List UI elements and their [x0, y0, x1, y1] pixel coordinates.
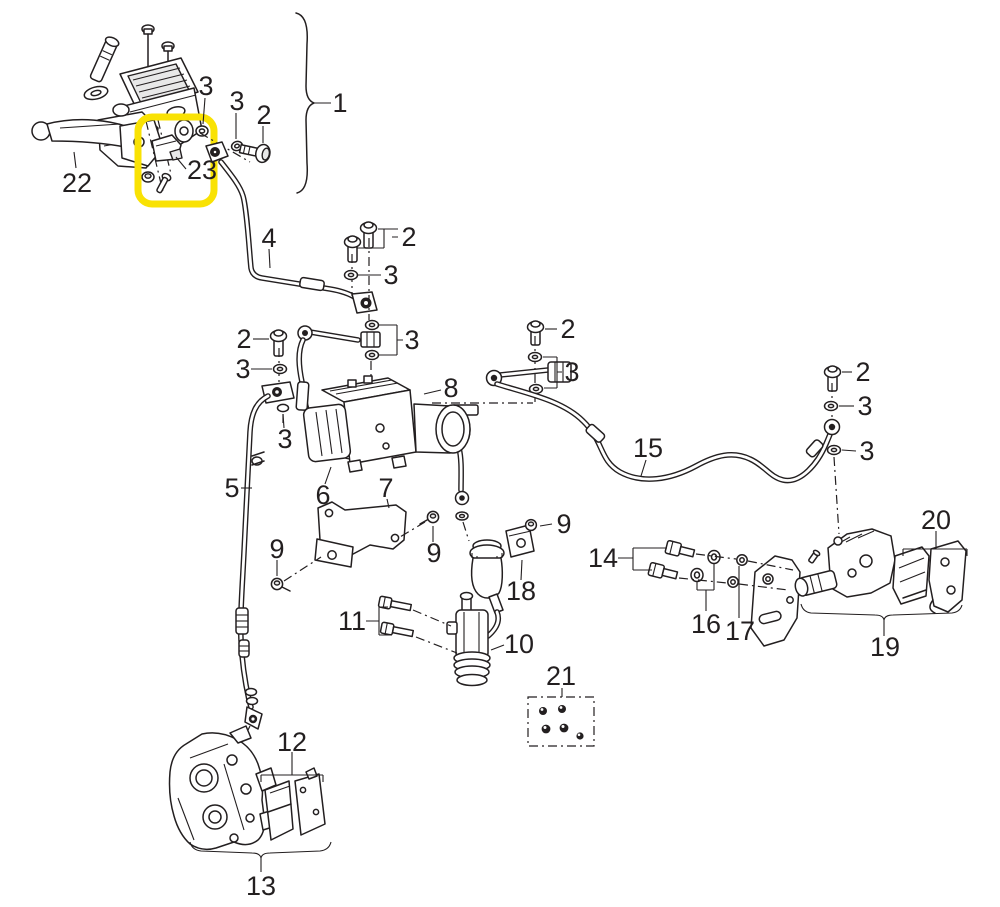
rear-master-cylinder [447, 593, 490, 686]
socket-bolt [648, 562, 678, 581]
brake-pad [929, 541, 966, 613]
callout-3: 3 [857, 391, 872, 421]
brake-pad [265, 781, 293, 840]
rear-banjo-hardware [825, 366, 841, 534]
bleed-cap-kit [528, 697, 594, 746]
callout-2: 2 [401, 222, 416, 252]
mounting-bolt [380, 622, 414, 639]
callout-9: 9 [426, 538, 441, 568]
abs-motor [414, 404, 470, 453]
callout-3: 3 [404, 325, 419, 355]
brake-system-diagram: 1 3 3 2 22 23 4 2 3 3 2 3 3 [0, 0, 1000, 907]
switch-screw [155, 172, 172, 194]
rear-brake-pads [893, 541, 966, 613]
callout-9: 9 [556, 509, 571, 539]
hose-sleeve [299, 277, 324, 291]
brake-pad [893, 547, 929, 604]
callout-3: 3 [859, 436, 874, 466]
callout-8: 8 [443, 373, 458, 403]
callout-17: 17 [725, 616, 755, 646]
callout-18: 18 [506, 576, 536, 606]
callout-3: 3 [229, 86, 244, 116]
hose4-end-elbow [352, 292, 377, 313]
callout-2: 2 [256, 100, 271, 130]
callout-13: 13 [246, 871, 276, 901]
hose-fitting [236, 608, 249, 657]
callout-19: 19 [870, 632, 900, 662]
callout-1: 1 [332, 88, 347, 118]
callout-2: 2 [560, 314, 575, 344]
bleed-cap [558, 705, 566, 713]
rear-brake-hose [497, 384, 840, 480]
callout-2: 2 [855, 357, 870, 387]
nut [728, 577, 738, 587]
hose-sleeve [585, 423, 606, 443]
callout-3: 3 [277, 424, 292, 454]
callout-11: 11 [338, 606, 366, 636]
hose-sleeve [296, 382, 309, 411]
banjo-bolt [238, 140, 271, 164]
callout-3: 3 [235, 354, 250, 384]
bracket-screw [526, 520, 537, 531]
switch-screw [142, 172, 154, 182]
callout-7: 7 [378, 473, 393, 503]
rear-caliper-body [794, 529, 895, 597]
abs-connector-block [303, 404, 351, 463]
callout-23: 23 [187, 155, 217, 185]
callout-9: 9 [269, 534, 284, 564]
brake-lever [32, 120, 163, 166]
callout-5: 5 [224, 473, 239, 503]
callout-15: 15 [633, 433, 663, 463]
callout-10: 10 [504, 629, 534, 659]
bleed-cap [539, 707, 547, 715]
socket-bolt [665, 540, 695, 559]
callout-16: 16 [691, 609, 721, 639]
hose-fitting-nut [361, 332, 380, 347]
callout-21: 21 [546, 661, 576, 691]
callout-4: 4 [261, 223, 276, 253]
callout-3: 3 [564, 357, 579, 387]
rear-caliper-assembly [751, 529, 966, 646]
hose8-banjo-eye [298, 326, 358, 340]
reservoir-screw [142, 25, 154, 70]
callout-6: 6 [315, 480, 330, 510]
callout-12: 12 [277, 727, 307, 757]
callout-3: 3 [383, 260, 398, 290]
bleed-cap [542, 725, 551, 734]
parts-diagram-page: 1 3 3 2 22 23 4 2 3 3 2 3 3 [0, 0, 1000, 907]
mounting-bolt [378, 596, 412, 613]
nut [737, 555, 747, 565]
bleed-cap [560, 724, 569, 733]
callout-14: 14 [588, 543, 618, 573]
callout-2: 2 [236, 324, 251, 354]
hose-clip [252, 452, 264, 465]
brake-pad [295, 768, 325, 835]
callout-20: 20 [921, 505, 951, 535]
callout-22: 22 [62, 168, 92, 198]
front-brake-hose-lower [236, 396, 268, 742]
bleed-nipple [807, 549, 820, 564]
abs-bracket [315, 502, 406, 567]
hose5-top-hardware [262, 330, 294, 427]
callout-3: 3 [198, 71, 213, 101]
bleed-cap [576, 732, 583, 739]
mirror-stud [89, 35, 120, 83]
hose15-start-fitting [487, 321, 572, 402]
assembly-brace [296, 13, 331, 193]
front-brake-caliper [170, 726, 277, 849]
